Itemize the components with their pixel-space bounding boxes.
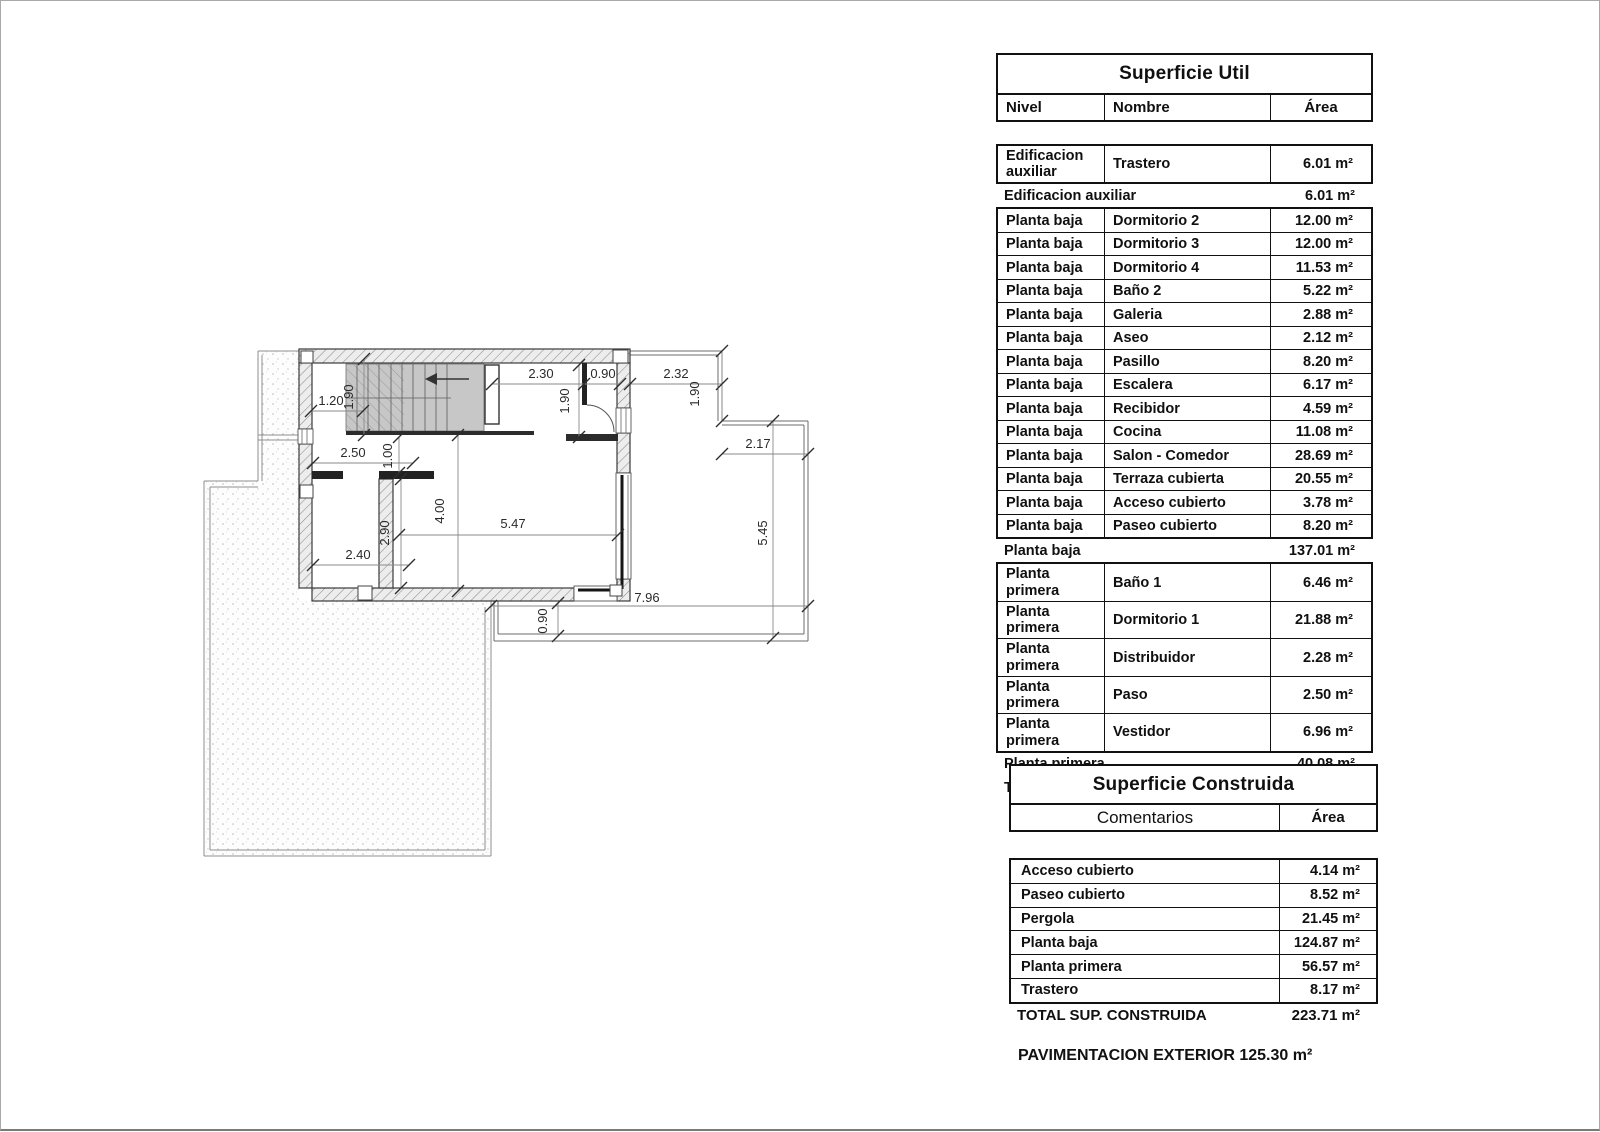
cell-area: 11.53 m²	[1270, 256, 1371, 279]
cell-nombre: Baño 1	[1104, 564, 1270, 600]
table-row: Planta bajaEscalera6.17 m²	[998, 373, 1371, 397]
cell-nivel: Planta baja	[998, 515, 1104, 538]
superficie-util-header: Superficie Util Nivel Nombre Área	[996, 53, 1373, 122]
summary-row: Edificacion auxiliar6.01 m²	[996, 184, 1373, 207]
cell-nivel: Planta primera	[998, 639, 1104, 675]
table-row: Trastero8.17 m²	[1011, 978, 1376, 1002]
table-section: Edificacion auxiliarTrastero6.01 m²	[996, 144, 1373, 184]
cell-comentario: Trastero	[1011, 979, 1279, 1002]
cell-area: 8.20 m²	[1270, 350, 1371, 373]
dimension-label: 2.30	[528, 366, 553, 381]
cell-area: 8.20 m²	[1270, 515, 1371, 538]
cell-area: 6.17 m²	[1270, 374, 1371, 397]
cell-nombre: Paso	[1104, 677, 1270, 713]
dimension-label: 5.45	[755, 520, 770, 545]
summary-row: Planta baja137.01 m²	[996, 539, 1373, 562]
table-row: Planta primera56.57 m²	[1011, 954, 1376, 978]
cell-nivel: Planta baja	[998, 491, 1104, 514]
cell-area: 21.45 m²	[1279, 908, 1376, 931]
table-row: Planta bajaGaleria2.88 m²	[998, 302, 1371, 326]
cell-comentario: Acceso cubierto	[1011, 860, 1279, 883]
cell-nombre: Salon - Comedor	[1104, 444, 1270, 467]
cell-nombre: Vestidor	[1104, 714, 1270, 750]
superficie-util-body: Edificacion auxiliarTrastero6.01 m²Edifi…	[996, 144, 1373, 776]
cell-area: 6.96 m²	[1270, 714, 1371, 750]
cell-nivel: Planta baja	[998, 280, 1104, 303]
cell-area: 12.00 m²	[1270, 209, 1371, 232]
cell-area: 3.78 m²	[1270, 491, 1371, 514]
cell-nivel: Planta baja	[998, 327, 1104, 350]
column-header-nivel: Nivel	[998, 95, 1104, 120]
cell-nivel: Planta baja	[998, 303, 1104, 326]
cell-nombre: Baño 2	[1104, 280, 1270, 303]
dimension-label: 1.20	[318, 393, 343, 408]
cell-area: 5.22 m²	[1270, 280, 1371, 303]
cell-area: 124.87 m²	[1279, 931, 1376, 954]
summary-label: Edificacion auxiliar	[1004, 188, 1136, 204]
cell-area: 8.52 m²	[1279, 884, 1376, 907]
cell-comentario: Planta primera	[1011, 955, 1279, 978]
table-section: Planta bajaDormitorio 212.00 m²Planta ba…	[996, 207, 1373, 539]
cell-nivel: Planta primera	[998, 564, 1104, 600]
cell-area: 2.50 m²	[1270, 677, 1371, 713]
cell-nivel: Planta baja	[998, 209, 1104, 232]
cell-nivel: Planta baja	[998, 444, 1104, 467]
cell-nivel: Planta primera	[998, 602, 1104, 638]
cell-nombre: Acceso cubierto	[1104, 491, 1270, 514]
cell-area: 2.12 m²	[1270, 327, 1371, 350]
floor-plan: 1.201.902.300.902.321.901.902.175.452.50…	[1, 1, 861, 1132]
superficie-construida-header: Superficie Construida Comentarios Área	[1009, 764, 1378, 832]
table-row: Planta bajaBaño 25.22 m²	[998, 279, 1371, 303]
cell-area: 6.46 m²	[1270, 564, 1371, 600]
cell-area: 12.00 m²	[1270, 233, 1371, 256]
cell-nivel: Planta baja	[998, 233, 1104, 256]
column-header-area: Área	[1270, 95, 1371, 120]
table-row: Planta bajaPasillo8.20 m²	[998, 349, 1371, 373]
cell-nombre: Pasillo	[1104, 350, 1270, 373]
dimension-label: 1.90	[341, 384, 356, 409]
table-row: Planta primeraDistribuidor2.28 m²	[998, 638, 1371, 675]
table-row: Planta bajaDormitorio 212.00 m²	[998, 209, 1371, 232]
stair-door-panel	[485, 365, 499, 424]
cell-comentario: Planta baja	[1011, 931, 1279, 954]
dimension-label: 7.96	[634, 590, 659, 605]
dimension-label: 0.90	[590, 366, 615, 381]
cell-nombre: Terraza cubierta	[1104, 468, 1270, 491]
total-sup-construida-label: TOTAL SUP. CONSTRUIDA	[1017, 1007, 1207, 1024]
superficie-construida-title: Superficie Construida	[1011, 766, 1376, 805]
summary-label: Planta baja	[1004, 543, 1081, 559]
cell-nombre: Dormitorio 4	[1104, 256, 1270, 279]
table-row: Planta primeraVestidor6.96 m²	[998, 713, 1371, 750]
table-row: Planta primeraDormitorio 121.88 m²	[998, 601, 1371, 638]
table-row: Planta baja124.87 m²	[1011, 930, 1376, 954]
cell-nivel: Planta baja	[998, 350, 1104, 373]
cell-nivel: Planta baja	[998, 397, 1104, 420]
cell-nombre: Escalera	[1104, 374, 1270, 397]
cell-nombre: Paseo cubierto	[1104, 515, 1270, 538]
table-row: Planta primeraBaño 16.46 m²	[998, 564, 1371, 600]
table-row: Planta bajaDormitorio 411.53 m²	[998, 255, 1371, 279]
table-row: Edificacion auxiliarTrastero6.01 m²	[998, 146, 1371, 182]
table-row: Planta bajaRecibidor4.59 m²	[998, 396, 1371, 420]
cell-nivel: Planta baja	[998, 374, 1104, 397]
cell-nivel: Planta baja	[998, 256, 1104, 279]
cell-nombre: Dormitorio 1	[1104, 602, 1270, 638]
summary-value: 137.01 m²	[1289, 543, 1373, 559]
cell-nombre: Galeria	[1104, 303, 1270, 326]
table-row: Planta bajaSalon - Comedor28.69 m²	[998, 443, 1371, 467]
table-row: Planta bajaCocina11.08 m²	[998, 420, 1371, 444]
superficie-util-title: Superficie Util	[998, 55, 1371, 95]
cell-area: 11.08 m²	[1270, 421, 1371, 444]
cell-nombre: Dormitorio 3	[1104, 233, 1270, 256]
column-header-comentarios: Comentarios	[1011, 805, 1279, 830]
superficie-util-table: Superficie Util Nivel Nombre Área Edific…	[996, 53, 1373, 800]
dimension-label: 2.40	[345, 547, 370, 562]
table-row: Planta primeraPaso2.50 m²	[998, 676, 1371, 713]
page: { "superficie_util": { "title": "Superfi…	[0, 0, 1600, 1131]
table-row: Acceso cubierto4.14 m²	[1011, 860, 1376, 883]
cell-area: 21.88 m²	[1270, 602, 1371, 638]
cell-nombre: Trastero	[1104, 146, 1270, 182]
cell-area: 4.59 m²	[1270, 397, 1371, 420]
table-row: Planta bajaDormitorio 312.00 m²	[998, 232, 1371, 256]
superficie-construida-table: Superficie Construida Comentarios Área A…	[1009, 764, 1378, 1028]
cell-area: 4.14 m²	[1279, 860, 1376, 883]
cell-area: 2.88 m²	[1270, 303, 1371, 326]
dimension-label: 2.90	[377, 520, 392, 545]
cell-nombre: Dormitorio 2	[1104, 209, 1270, 232]
cell-nivel: Planta baja	[998, 421, 1104, 444]
cell-area: 28.69 m²	[1270, 444, 1371, 467]
table-row: Planta bajaPaseo cubierto8.20 m²	[998, 514, 1371, 538]
cell-area: 20.55 m²	[1270, 468, 1371, 491]
dimension-label: 5.47	[500, 516, 525, 531]
total-sup-construida-row: TOTAL SUP. CONSTRUIDA 223.71 m²	[1009, 1004, 1378, 1028]
cell-nombre: Aseo	[1104, 327, 1270, 350]
cell-nombre: Recibidor	[1104, 397, 1270, 420]
table-row: Paseo cubierto8.52 m²	[1011, 883, 1376, 907]
cell-area: 2.28 m²	[1270, 639, 1371, 675]
column-header-area2: Área	[1279, 805, 1376, 830]
table-section: Planta primeraBaño 16.46 m²Planta primer…	[996, 562, 1373, 752]
cell-area: 8.17 m²	[1279, 979, 1376, 1002]
summary-value: 6.01 m²	[1305, 188, 1373, 204]
total-sup-construida-value: 223.71 m²	[1292, 1007, 1378, 1024]
cell-nivel: Planta baja	[998, 468, 1104, 491]
table-row: Planta bajaAseo2.12 m²	[998, 326, 1371, 350]
dimension-label: 2.17	[745, 436, 770, 451]
cell-nivel: Edificacion auxiliar	[998, 146, 1104, 182]
cell-comentario: Pergola	[1011, 908, 1279, 931]
dimension-label: 1.90	[687, 381, 702, 406]
table-row: Planta bajaAcceso cubierto3.78 m²	[998, 490, 1371, 514]
cell-nivel: Planta primera	[998, 677, 1104, 713]
column-header-nombre: Nombre	[1104, 95, 1270, 120]
table-row: Planta bajaTerraza cubierta20.55 m²	[998, 467, 1371, 491]
stair-landing-edge	[346, 431, 534, 435]
dimension-label: 0.90	[535, 608, 550, 633]
superficie-construida-body: Acceso cubierto4.14 m²Paseo cubierto8.52…	[1009, 858, 1378, 1004]
dimension-label: 2.32	[663, 366, 688, 381]
dimension-label: 2.50	[340, 445, 365, 460]
table-row: Pergola21.45 m²	[1011, 907, 1376, 931]
pavimentacion-exterior-note: PAVIMENTACION EXTERIOR 125.30 m²	[1018, 1047, 1312, 1065]
cell-area: 56.57 m²	[1279, 955, 1376, 978]
dimension-label: 4.00	[432, 498, 447, 523]
dimension-label: 1.00	[380, 443, 395, 468]
cell-nivel: Planta primera	[998, 714, 1104, 750]
dimension-label: 1.90	[557, 388, 572, 413]
cell-area: 6.01 m²	[1270, 146, 1371, 182]
cell-comentario: Paseo cubierto	[1011, 884, 1279, 907]
cell-nombre: Cocina	[1104, 421, 1270, 444]
cell-nombre: Distribuidor	[1104, 639, 1270, 675]
